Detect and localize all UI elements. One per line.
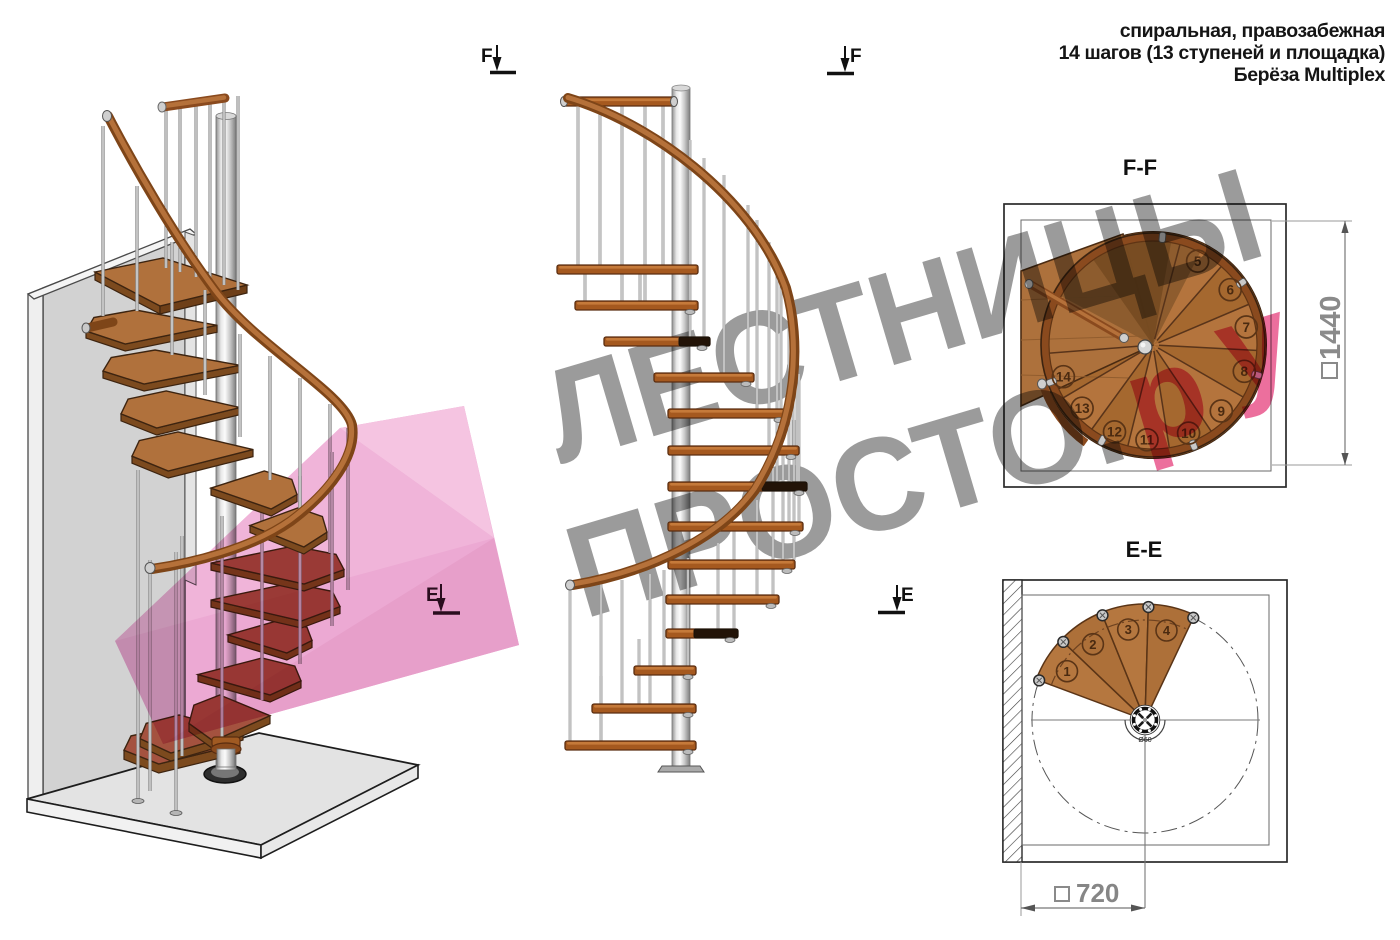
svg-text:3: 3	[1125, 622, 1132, 637]
svg-text:E-E: E-E	[1126, 537, 1163, 562]
svg-text:Берёза Multiplex: Берёза Multiplex	[1234, 64, 1386, 86]
svg-text:9: 9	[1218, 404, 1226, 419]
svg-text:4: 4	[1163, 623, 1171, 638]
svg-text:14 шагов (13 ступеней и площад: 14 шагов (13 ступеней и площадка)	[1059, 42, 1385, 64]
svg-text:2: 2	[1089, 637, 1096, 652]
svg-text:Ø60: Ø60	[1138, 737, 1151, 744]
svg-text:F: F	[481, 46, 493, 67]
svg-text:E: E	[426, 585, 439, 606]
svg-text:F: F	[850, 46, 862, 67]
svg-text:E: E	[901, 585, 914, 606]
svg-text:спиральная, правозабежная: спиральная, правозабежная	[1120, 20, 1385, 42]
svg-text:720: 720	[1076, 878, 1119, 908]
svg-text:1440: 1440	[1315, 295, 1347, 360]
svg-text:1: 1	[1063, 664, 1070, 679]
